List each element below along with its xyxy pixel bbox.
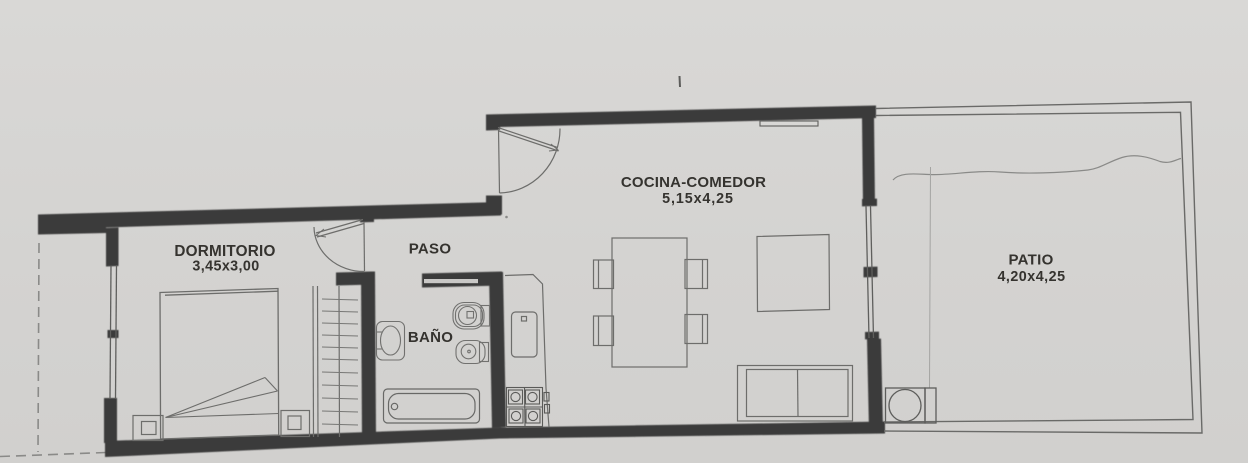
svg-text:BAÑO: BAÑO: [408, 328, 453, 346]
svg-text:3,45x3,00: 3,45x3,00: [192, 258, 259, 274]
svg-text:5,15x4,25: 5,15x4,25: [662, 191, 734, 207]
svg-text:PASO: PASO: [409, 241, 452, 258]
svg-text:PATIO: PATIO: [1008, 252, 1053, 269]
svg-text:4,20x4,25: 4,20x4,25: [997, 269, 1065, 285]
svg-text:COCINA-COMEDOR: COCINA-COMEDOR: [621, 174, 766, 191]
